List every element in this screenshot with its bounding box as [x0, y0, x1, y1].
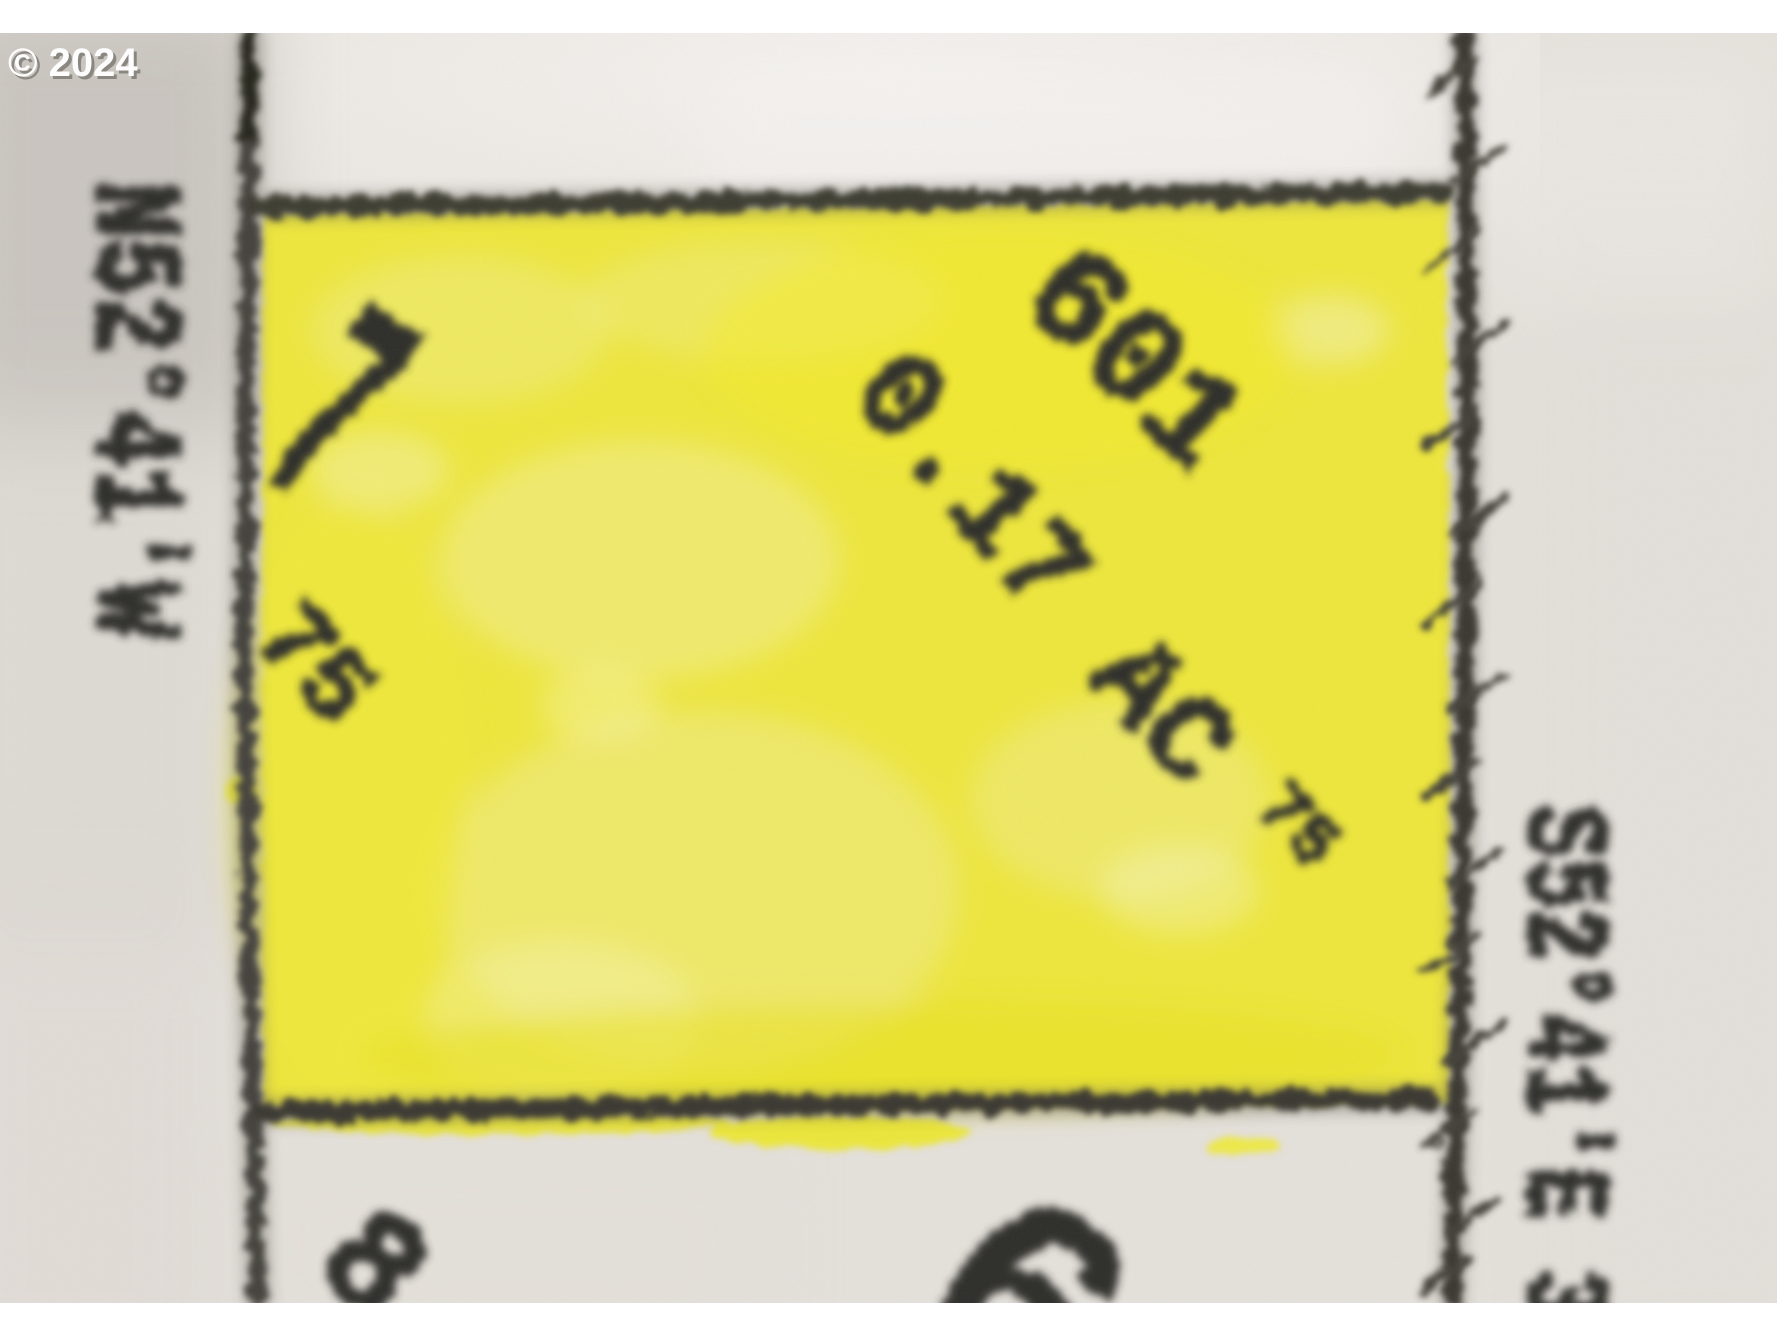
svg-text:© 2024: © 2024 [8, 41, 138, 85]
